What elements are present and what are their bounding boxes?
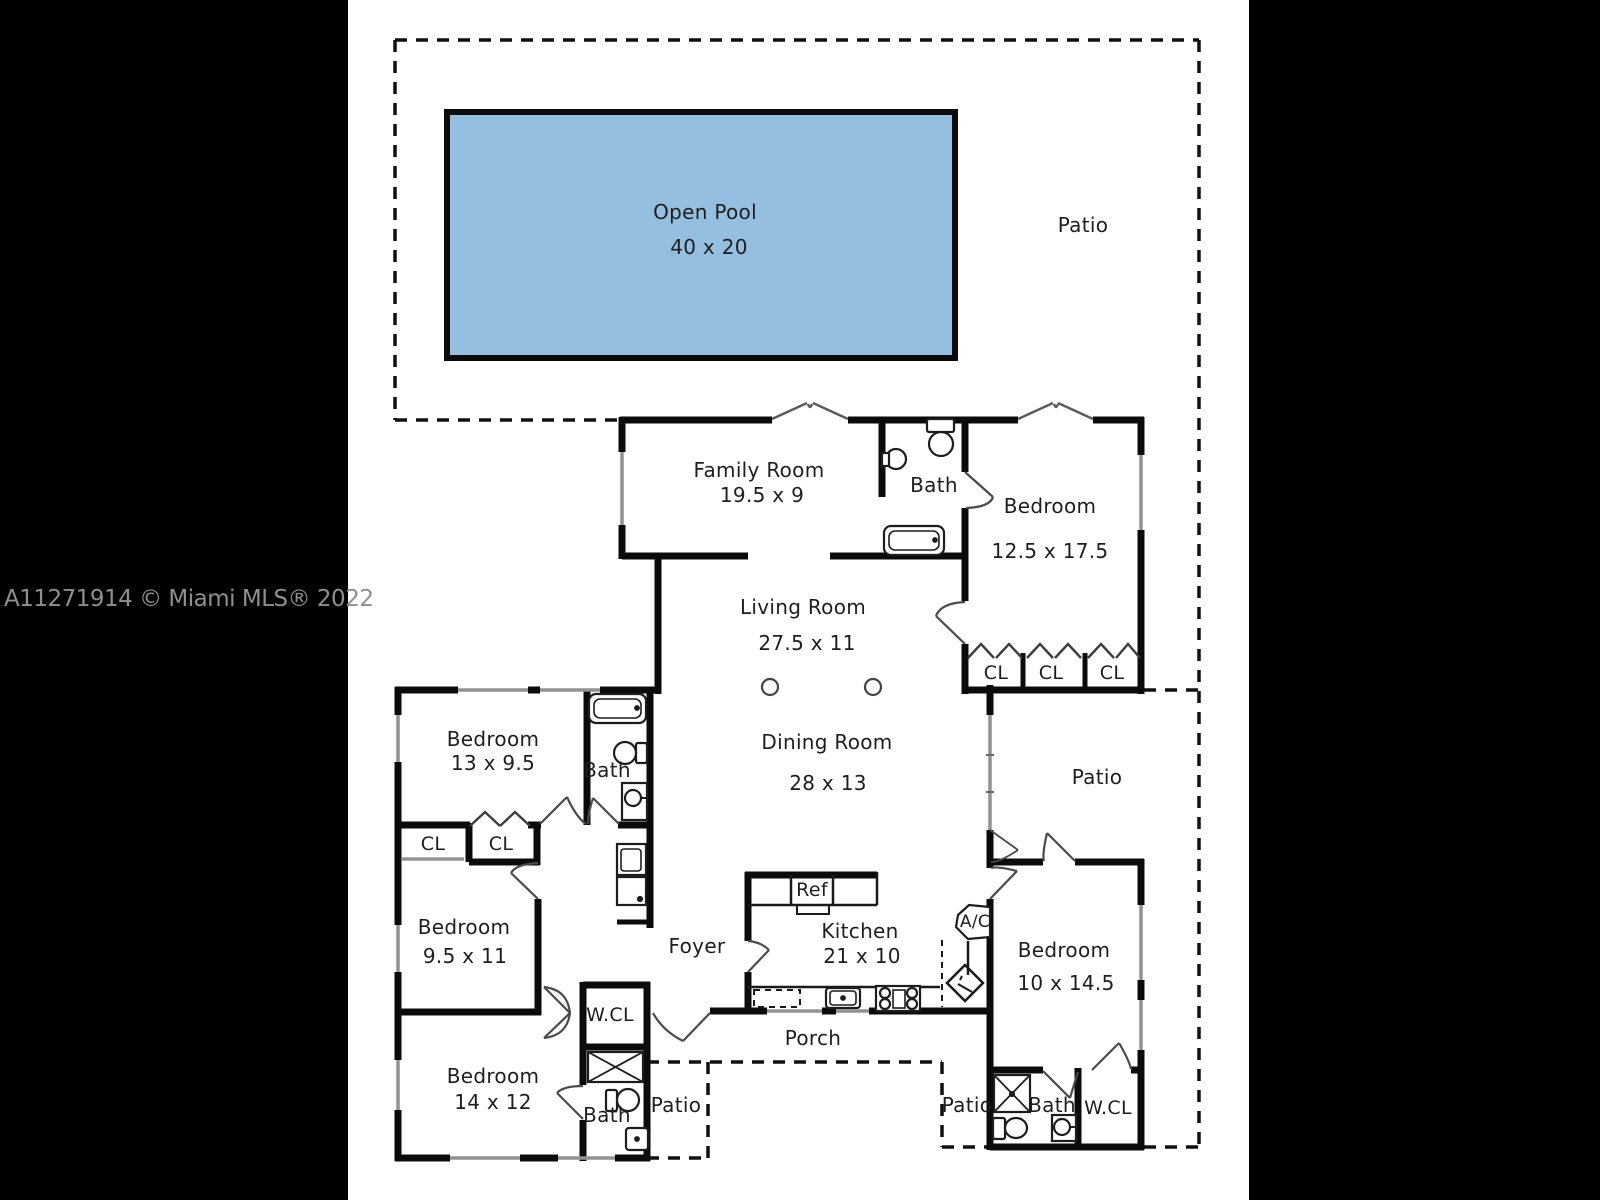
- label-cl-ne-2: CL: [1039, 662, 1063, 684]
- label-bath-sw: Bath: [583, 1103, 631, 1127]
- label-ref: Ref: [796, 879, 828, 901]
- label-bath-w: Bath: [583, 758, 631, 782]
- door-bedroom-se-left: [990, 867, 1017, 899]
- label-wcl-se: W.CL: [1084, 1097, 1132, 1119]
- sink-icon-bath-sw: [626, 1128, 648, 1150]
- door-bedroom-se-top: [1043, 833, 1075, 861]
- label-cl-w-1: CL: [421, 833, 445, 855]
- mls-watermark: A11271914 © Miami MLS® 2022: [4, 586, 373, 612]
- door-entry-porch: [653, 1013, 710, 1041]
- bathtub-icon-bath-ne: [884, 526, 944, 555]
- label-dining-room-dims: 28 x 13: [789, 771, 867, 795]
- door-bedroom-ne: [936, 602, 965, 644]
- label-kitchen-dims: 21 x 10: [823, 944, 901, 968]
- label-wcl-sw: W.CL: [586, 1004, 634, 1026]
- door-bath-w: [588, 798, 619, 824]
- door-bath-sw: [557, 1086, 583, 1119]
- label-patio-se: Patio: [942, 1093, 993, 1117]
- washer-dryer-icon: [617, 844, 646, 905]
- sink-icon-bath-se: [1052, 1115, 1076, 1141]
- walls: [395, 417, 1144, 1161]
- label-bedroom-nw-dims: 13 x 9.5: [451, 751, 535, 775]
- label-foyer: Foyer: [669, 934, 726, 958]
- toilet-icon-bath-se: [993, 1118, 1027, 1139]
- sink-icon-bath-w: [622, 783, 647, 820]
- sink-icon-bath-ne: [882, 449, 906, 469]
- kitchen-sink-icon: [826, 988, 860, 1008]
- door-bedroom-w: [511, 863, 538, 899]
- label-dining-room: Dining Room: [761, 730, 892, 754]
- label-bedroom-sw: Bedroom: [447, 1064, 540, 1088]
- label-family-room-dims: 19.5 x 9: [720, 483, 804, 507]
- label-living-room-dims: 27.5 x 11: [758, 631, 855, 655]
- label-bath-se: Bath: [1028, 1093, 1076, 1117]
- corner-cabinet: [947, 965, 983, 1001]
- shower-icon-bath-sw: [588, 1052, 643, 1082]
- label-family-room: Family Room: [694, 458, 825, 482]
- label-pool-dims: 40 x 20: [670, 235, 748, 259]
- label-patio-e: Patio: [1072, 765, 1123, 789]
- label-bedroom-nw: Bedroom: [447, 727, 540, 751]
- label-bedroom-sw-dims: 14 x 12: [454, 1090, 532, 1114]
- column-icons: [762, 679, 881, 695]
- door-bath-ne: [965, 472, 993, 508]
- label-cl-ne-3: CL: [1100, 662, 1124, 684]
- door-wcl-sw-right: [544, 1013, 570, 1038]
- label-bath-ne: Bath: [910, 473, 958, 497]
- label-kitchen: Kitchen: [821, 919, 898, 943]
- label-cl-w-2: CL: [489, 833, 513, 855]
- label-bedroom-se: Bedroom: [1018, 938, 1111, 962]
- label-patio-top: Patio: [1058, 213, 1109, 237]
- label-patio-sw: Patio: [651, 1093, 702, 1117]
- door-wcl-se: [1092, 1043, 1131, 1070]
- door-kitchen: [748, 941, 769, 972]
- shower-icon-bath-se: [994, 1075, 1030, 1112]
- label-ac: A/C: [960, 912, 990, 932]
- walls-main: [395, 417, 1144, 1161]
- label-bedroom-w-dims: 9.5 x 11: [423, 944, 507, 968]
- label-cl-ne-1: CL: [984, 662, 1008, 684]
- toilet-icon-bath-ne: [927, 419, 954, 456]
- bathtub-icon-bath-w: [589, 694, 646, 723]
- door-wcl-sw-left: [544, 987, 570, 1013]
- stove-icon: [876, 986, 920, 1011]
- door-patio-e: [990, 830, 1018, 862]
- label-living-room: Living Room: [740, 595, 866, 619]
- floorplan-screenshot: Open Pool 40 x 20 Patio Family Room 19.5…: [0, 0, 1600, 1200]
- label-bedroom-ne-dims: 12.5 x 17.5: [992, 539, 1109, 563]
- door-bedroom-nw: [540, 797, 586, 824]
- label-bedroom-ne: Bedroom: [1004, 494, 1097, 518]
- label-bedroom-w: Bedroom: [418, 915, 511, 939]
- label-bedroom-se-dims: 10 x 14.5: [1017, 971, 1114, 995]
- label-porch: Porch: [785, 1026, 842, 1050]
- label-pool-title: Open Pool: [653, 200, 757, 224]
